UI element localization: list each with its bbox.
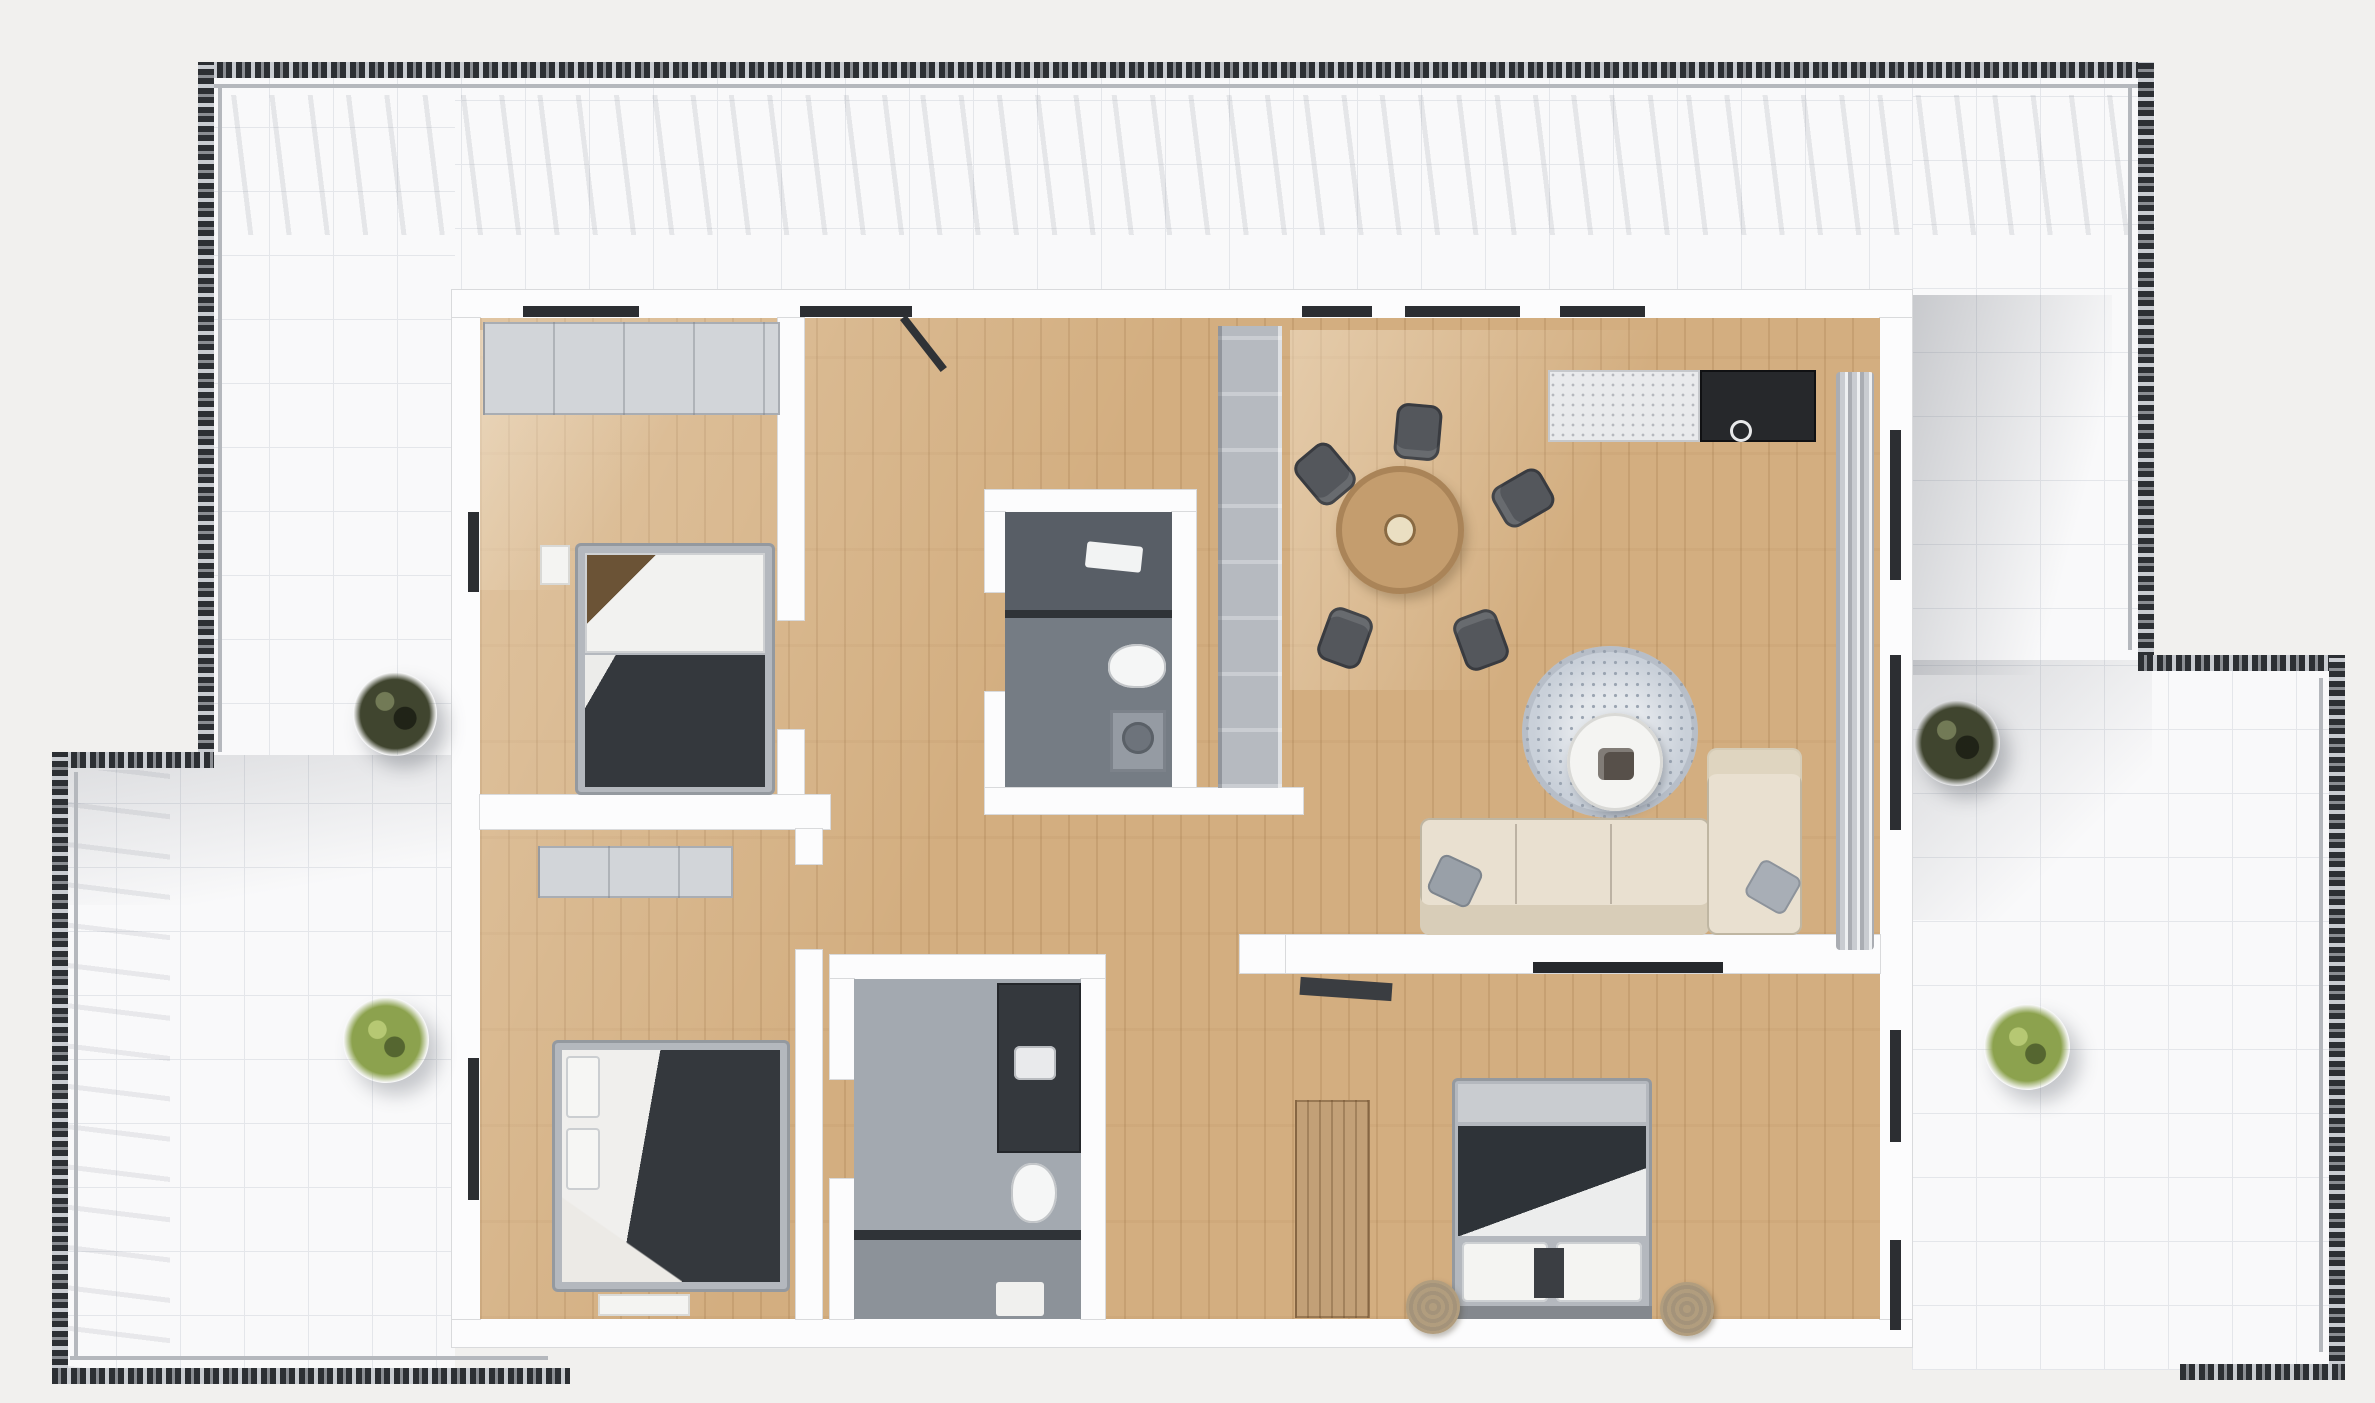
railing-bottom-left — [52, 1368, 570, 1384]
bathroom-shower-zone — [854, 1240, 1081, 1319]
railing-left-connector — [52, 752, 214, 768]
window-living-top-1 — [1302, 306, 1372, 317]
plant-terrace-right-lower — [1984, 1004, 2070, 1090]
bed-bedroom3-foot-bench — [1458, 1084, 1646, 1122]
wall-bedroom1-hall-upper — [778, 318, 804, 620]
bed-bedroom3-blanket — [1458, 1126, 1646, 1236]
window-living-right-2 — [1890, 655, 1901, 830]
coffee-table-tray — [1598, 748, 1634, 780]
bed-bedroom1-blanket — [585, 655, 765, 787]
wardrobe-bedroom1 — [483, 322, 780, 415]
wall-bedroom2-hall-upper — [796, 829, 822, 864]
railing-top-inner-line — [212, 84, 2140, 88]
railing-lower-left — [52, 752, 68, 1384]
bed-bedroom1-pillows — [585, 553, 765, 653]
sofa-cushion-divider — [1515, 824, 1517, 904]
dresser-bedroom2 — [538, 846, 733, 898]
railing-lower-left-inner-line — [74, 772, 78, 1360]
hallway-cabinet — [1218, 326, 1282, 788]
bathroom-mat — [996, 1282, 1044, 1316]
terrace-right — [1912, 78, 2152, 673]
wardrobe-bedroom3 — [1295, 1100, 1370, 1318]
railing-top — [198, 62, 2152, 78]
bed-bedroom3-pillow-2 — [1556, 1242, 1642, 1302]
pouf-right — [1660, 1282, 1714, 1336]
railing-lower-right — [2329, 655, 2345, 1380]
bed-bedroom2-pillow-2 — [566, 1128, 600, 1190]
railing-lower-right-inner-line — [2319, 678, 2323, 1352]
cooktop-burner — [1730, 420, 1752, 442]
wall-wc-right — [1172, 512, 1196, 788]
pouf-left — [1406, 1280, 1460, 1334]
kitchen-counter — [1548, 370, 1700, 442]
window-bedroom1-top — [523, 306, 639, 317]
media-console-living — [1533, 962, 1723, 973]
railing-bottom-right — [2180, 1364, 2345, 1380]
wall-hall-south — [985, 788, 1303, 814]
bed-bedroom2-pillow-1 — [566, 1056, 600, 1118]
terrace-top — [205, 78, 2155, 293]
wall-wc-left-upper — [985, 512, 1005, 592]
window-living-right-1 — [1890, 430, 1901, 580]
wc-shower-divider — [1005, 610, 1172, 618]
wall-wc-left-lower — [985, 692, 1005, 788]
railing-upper-right — [2138, 62, 2154, 667]
wall-bathroom-left-lower — [830, 1179, 854, 1319]
entry-hallway — [804, 318, 984, 788]
wall-bathroom-left-upper — [830, 979, 854, 1079]
wall-bathroom-top — [830, 955, 1105, 979]
plant-terrace-left-upper — [353, 672, 437, 756]
nightstand-bedroom1 — [540, 545, 570, 585]
sofa-cushion-divider — [1610, 824, 1612, 904]
window-bedroom2-left — [468, 1058, 479, 1200]
window-bedroom3-right-1 — [1890, 1030, 1901, 1142]
wall-bedroom1-bedroom2 — [480, 795, 830, 829]
dining-chair — [1393, 402, 1444, 462]
wc-toilet — [1108, 644, 1166, 688]
bathroom-toilet — [1011, 1163, 1057, 1223]
entry-door-frame — [800, 306, 912, 317]
railing-upper-left-inner-line — [218, 84, 222, 752]
bed-bedroom3-headboard — [1452, 1306, 1652, 1319]
terrace-left — [205, 78, 455, 768]
railing-bottom-left-inner-line — [70, 1356, 548, 1360]
plant-terrace-left-lower — [343, 997, 429, 1083]
wall-bedroom3-door-stub — [1240, 935, 1285, 973]
bathroom-sink — [1014, 1046, 1056, 1080]
floor-plan-stage — [0, 0, 2375, 1403]
wall-wc-top — [985, 490, 1196, 512]
wall-bathroom-right — [1081, 979, 1105, 1319]
wall-bedroom2-hall-lower — [796, 950, 822, 1319]
railing-upper-left — [198, 62, 214, 768]
window-kitchen-top — [1560, 306, 1645, 317]
dining-table-centerpiece — [1384, 514, 1416, 546]
wall-bedroom1-hall-lower — [778, 730, 804, 795]
wc-washer-door — [1122, 722, 1154, 754]
window-living-top-2 — [1405, 306, 1520, 317]
curtain-living-right — [1836, 372, 1874, 950]
plant-terrace-right-upper — [1914, 700, 2000, 786]
window-bedroom3-right-2 — [1890, 1240, 1901, 1330]
apartment-wall-top — [452, 290, 1912, 318]
kitchen-cooktop — [1700, 370, 1816, 442]
bed-bedroom2-sheet-fold — [562, 1180, 682, 1282]
railing-upper-right-inner-line — [2128, 84, 2132, 650]
window-bedroom1-left — [468, 512, 479, 592]
bathroom-shower-divider — [854, 1230, 1081, 1240]
bench-bedroom2 — [598, 1294, 690, 1316]
railing-right-connector — [2138, 655, 2345, 671]
bed-bedroom3-console — [1534, 1248, 1564, 1298]
